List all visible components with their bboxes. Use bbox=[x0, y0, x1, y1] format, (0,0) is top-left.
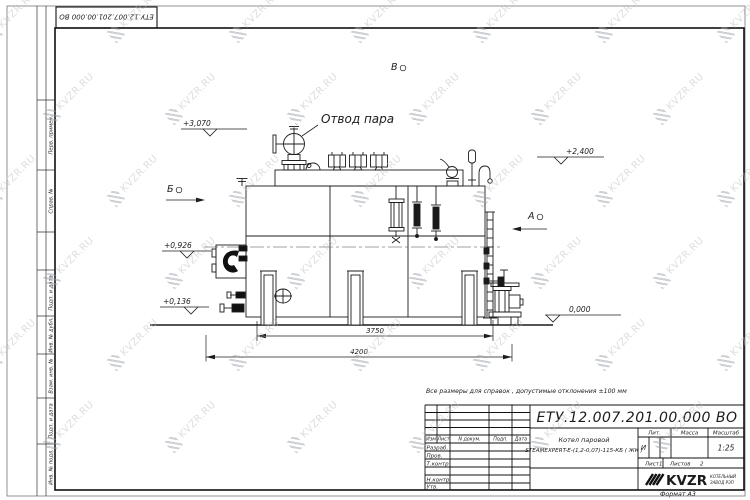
sheet-label: Лист bbox=[644, 462, 660, 468]
mass-label: Масса bbox=[681, 431, 699, 437]
sig-tkontr: Т.контр bbox=[427, 462, 450, 468]
margin-label: Инв. № дубл. bbox=[49, 317, 55, 353]
elevation-value: +0,136 bbox=[163, 297, 191, 306]
doc-number: ЕТУ.12.007.201.00.000 ВО bbox=[536, 410, 737, 426]
steam-drum-platform bbox=[275, 170, 463, 186]
manhole-dome bbox=[306, 163, 320, 170]
margin-label: Перв. примен. bbox=[49, 116, 55, 155]
sight-glass bbox=[274, 289, 292, 303]
view-marker-a: А bbox=[512, 211, 547, 231]
steam-outlet-valve bbox=[273, 127, 306, 171]
lit-value: И bbox=[641, 444, 647, 452]
view-marker-v: В bbox=[391, 62, 406, 73]
elevation-value: +0,926 bbox=[164, 241, 192, 250]
safety-valve bbox=[371, 152, 388, 170]
boiler-drawing bbox=[150, 127, 553, 326]
elevation-mark: +0,926 bbox=[162, 241, 211, 258]
dimension-3750: 3750 bbox=[257, 320, 493, 341]
left-margin-labels: Перв. примен. Справ. № Подп. и дата Инв.… bbox=[49, 116, 55, 485]
support-leg bbox=[260, 271, 277, 325]
gauge-capsule bbox=[468, 150, 476, 186]
blueprint-svg: ЕТУ.12.007.201.00.000 ВО Перв. примен. С… bbox=[0, 0, 750, 500]
dimensions: 3750 4200 bbox=[206, 320, 512, 362]
view-marker-b: Б bbox=[166, 184, 205, 202]
water-gauge-glass bbox=[431, 186, 441, 241]
elevation-value: +3,070 bbox=[183, 119, 211, 128]
kvzr-logo-sub1: КОТЕЛЬНЫЙ bbox=[710, 474, 736, 479]
sheet-note: Все размеры для справок , допустимые отк… bbox=[426, 388, 627, 395]
view-markers: Б В А bbox=[166, 62, 547, 231]
col-izm: Изм bbox=[426, 437, 436, 443]
hook-pipe bbox=[479, 166, 492, 186]
dimension-value: 3750 bbox=[366, 327, 384, 335]
margin-label: Подп. и дата bbox=[49, 403, 55, 438]
view-marker-a-label: А bbox=[527, 211, 535, 222]
margin-label: Инв. № подл. bbox=[49, 449, 55, 485]
view-marker-b-label: Б bbox=[167, 184, 174, 195]
safety-valves bbox=[329, 152, 388, 170]
top-stamp-doc-number: ЕТУ.12.007.201.00.000 ВО bbox=[59, 13, 154, 21]
sheet-no: 1 bbox=[659, 462, 663, 468]
water-gauge-glass bbox=[412, 186, 422, 238]
col-ndokum: N докум. bbox=[458, 437, 480, 443]
feed-pump bbox=[485, 270, 523, 325]
drawing-sheet: KVZR.RUKVZR.RUKVZR.RUKVZR.RUKVZR.RUKVZR.… bbox=[0, 0, 750, 500]
safety-valve bbox=[350, 152, 367, 170]
elevation-mark: +2,400 bbox=[537, 147, 604, 164]
kvzr-logo-text: KVZR bbox=[666, 473, 708, 489]
support-leg bbox=[461, 271, 478, 325]
product-name-line2: STEAMEXPERT-Е-(1,2-0,07)-115-КБ ( ЖК ) bbox=[525, 448, 642, 454]
margin-label: Подп. и дата bbox=[49, 275, 55, 310]
margin-label: Справ. № bbox=[49, 188, 55, 213]
product-name-line1: Котел паровой bbox=[559, 436, 610, 444]
water-gauges bbox=[389, 186, 441, 243]
elevation-marks: +3,070 +2,400 +0,926 +0,136 0,000 bbox=[160, 119, 621, 322]
water-gauge-column bbox=[389, 186, 404, 243]
sheets-label: Листов bbox=[669, 462, 691, 468]
margin-label: Взам. инв. № bbox=[49, 358, 55, 393]
dimension-4200: 4200 bbox=[206, 335, 512, 362]
lever-valve bbox=[440, 159, 459, 186]
elevation-mark: 0,000 bbox=[545, 305, 621, 322]
scale-value: 1:25 bbox=[718, 444, 735, 453]
scale-label: Масштаб bbox=[713, 431, 740, 437]
col-podp: Подп. bbox=[493, 437, 508, 443]
company-logo: KVZR КОТЕЛЬНЫЙ ЗАВОД РЭП bbox=[646, 473, 736, 489]
elevation-value: +2,400 bbox=[566, 147, 594, 156]
col-list: Лист bbox=[436, 437, 449, 443]
view-marker-v-label: В bbox=[391, 62, 398, 73]
elevation-value: 0,000 bbox=[569, 305, 591, 314]
steam-outlet-annotation: Отвод пара bbox=[302, 112, 394, 136]
safety-valve bbox=[329, 152, 346, 170]
lit-label: Лит. bbox=[647, 431, 661, 437]
sig-utv: Утв. bbox=[427, 485, 439, 491]
boiler-body bbox=[246, 186, 485, 317]
col-data: Дата bbox=[514, 437, 527, 443]
sig-razrab: Разраб. bbox=[427, 446, 449, 452]
top-stamp: ЕТУ.12.007.201.00.000 ВО bbox=[56, 7, 157, 28]
sheets-total: 2 bbox=[700, 462, 704, 468]
support-leg bbox=[347, 271, 364, 325]
elevation-mark: +0,136 bbox=[160, 297, 209, 314]
steam-outlet-label: Отвод пара bbox=[321, 112, 394, 126]
elevation-mark: +3,070 bbox=[181, 119, 247, 136]
sig-nkontr: Н.контр bbox=[427, 478, 450, 484]
kvzr-logo-icon bbox=[646, 474, 664, 485]
sig-prov: Пров. bbox=[427, 454, 443, 460]
kvzr-logo-sub2: ЗАВОД РЭП bbox=[710, 480, 734, 485]
dimension-value: 4200 bbox=[350, 348, 368, 356]
format-label: Формат А3 bbox=[660, 491, 696, 498]
